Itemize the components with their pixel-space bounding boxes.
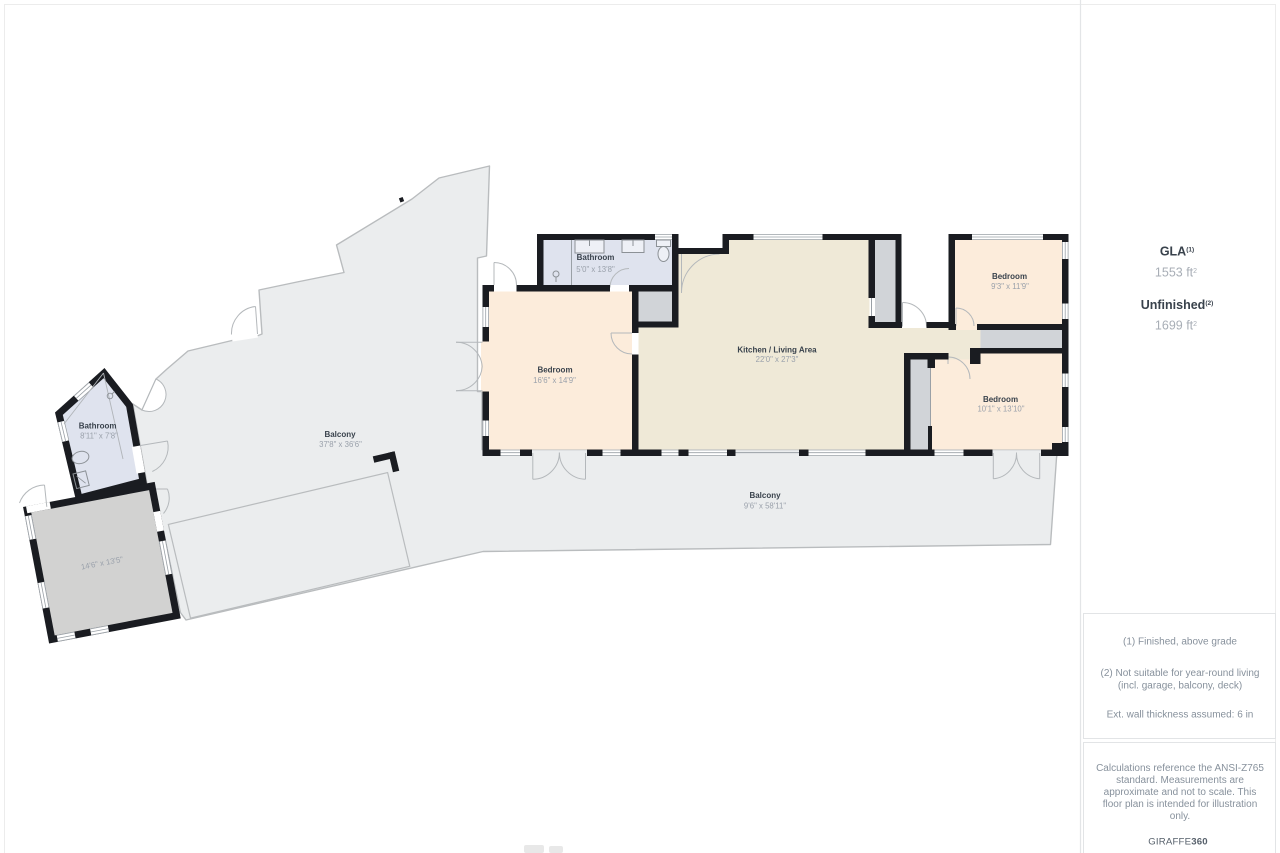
svg-text:9'6" x 58'11": 9'6" x 58'11" — [744, 502, 786, 511]
svg-text:Bedroom: Bedroom — [992, 272, 1027, 281]
svg-text:Kitchen / Living Area: Kitchen / Living Area — [737, 346, 817, 355]
svg-text:Bathroom: Bathroom — [79, 422, 117, 431]
svg-text:standard. Measurements are: standard. Measurements are — [1116, 775, 1244, 786]
svg-text:1699 ft2: 1699 ft2 — [1155, 319, 1197, 333]
svg-text:(2) Not suitable for year-roun: (2) Not suitable for year-round living — [1101, 668, 1260, 679]
svg-text:22'0" x 27'3": 22'0" x 27'3" — [756, 355, 799, 364]
svg-text:Bedroom: Bedroom — [537, 366, 572, 375]
svg-text:only.: only. — [1170, 811, 1190, 822]
svg-text:Calculations reference the ANS: Calculations reference the ANSI-Z765 — [1096, 763, 1264, 774]
svg-text:Balcony: Balcony — [749, 491, 781, 500]
svg-text:5'0" x 13'8": 5'0" x 13'8" — [576, 265, 615, 274]
svg-text:approximate and not to scale.: approximate and not to scale. This — [1104, 787, 1257, 798]
svg-text:(incl. garage, balcony, deck): (incl. garage, balcony, deck) — [1118, 681, 1242, 692]
svg-text:Balcony: Balcony — [324, 430, 356, 439]
svg-text:Bathroom: Bathroom — [577, 253, 615, 262]
svg-text:37'8" x 36'6": 37'8" x 36'6" — [319, 440, 362, 449]
svg-text:Ext. wall thickness assumed: 6: Ext. wall thickness assumed: 6 in — [1107, 710, 1254, 721]
svg-text:1553 ft2: 1553 ft2 — [1155, 266, 1197, 280]
svg-text:10'1" x 13'10": 10'1" x 13'10" — [977, 405, 1024, 414]
svg-text:GIRAFFE360: GIRAFFE360 — [1148, 837, 1208, 848]
svg-text:Unfinished(2): Unfinished(2) — [1141, 298, 1214, 312]
svg-text:8'11" x 7'8": 8'11" x 7'8" — [80, 432, 118, 441]
svg-text:floor plan is intended for ill: floor plan is intended for illustration — [1103, 799, 1258, 810]
svg-text:9'3" x 11'9": 9'3" x 11'9" — [991, 282, 1029, 291]
svg-text:Bedroom: Bedroom — [983, 395, 1018, 404]
svg-text:16'6" x 14'9": 16'6" x 14'9" — [533, 376, 576, 385]
svg-text:(1) Finished, above grade: (1) Finished, above grade — [1123, 637, 1237, 648]
